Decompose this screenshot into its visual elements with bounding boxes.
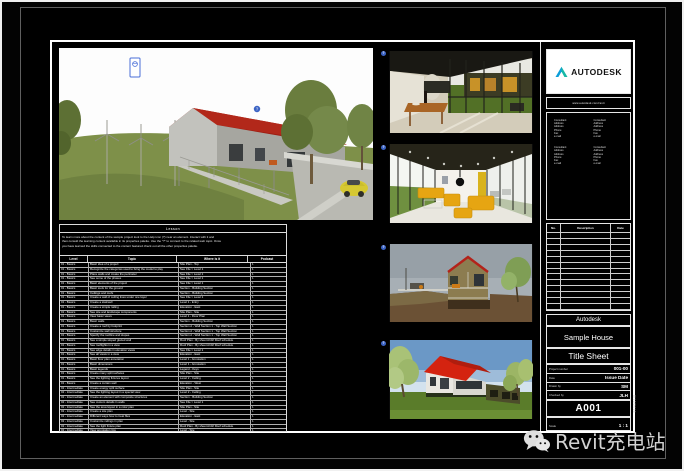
field-label: Checked by [549, 393, 564, 397]
schedule-intro: To learn more about the content of the s… [60, 233, 286, 256]
revision-cell [611, 298, 630, 303]
table-cell: Roof Plan - By sheet A102 Roof schedule [179, 344, 251, 348]
watermark-text: Revit充电站 [555, 426, 666, 455]
field-value: SM [621, 384, 628, 389]
revision-cell [547, 286, 561, 291]
table-cell: 1 [251, 301, 286, 305]
table-cell: 02 - Intermediate [60, 420, 89, 424]
revision-cell [561, 280, 611, 285]
table-cell: Elevation - East [179, 306, 251, 310]
table-cell: Basic idea of a project [89, 263, 179, 267]
field-value: Issue Date [605, 375, 628, 380]
table-cell: 01 - Basics [60, 363, 89, 367]
table-cell: Level 1 - Annotation [179, 358, 251, 362]
table-cell: 02 - Intermediate [60, 429, 89, 431]
table-cell: Different ways how to treat files [89, 415, 179, 419]
table-cell: Level - Site [179, 420, 251, 424]
table-cell: 1 [251, 368, 286, 372]
kitchen-rendering [389, 51, 533, 133]
consultant-line: e-mail [554, 162, 584, 165]
table-cell: Level 2 - Ceiling [179, 391, 251, 395]
revision-cell [547, 233, 561, 238]
table-cell: 1 [251, 339, 286, 343]
table-cell: Level - Site [179, 429, 251, 431]
revision-cell [547, 298, 561, 303]
table-cell: 1 [251, 287, 286, 291]
field-value: 001-00 [614, 366, 628, 371]
table-cell: Basic dimensions [89, 363, 179, 367]
consultant-line: e-mail [594, 162, 624, 165]
revision-rows [547, 233, 630, 310]
revision-cell [547, 263, 561, 268]
table-cell: 1 [251, 306, 286, 310]
table-cell: 01 - Basics [60, 306, 89, 310]
table-cell: See the area layout in a color plan [89, 406, 179, 410]
lessons-schedule: Lesson To learn more about the content o… [59, 224, 287, 432]
table-cell: 02 - Intermediate [60, 425, 89, 429]
revision-cell [561, 245, 611, 250]
table-cell: See all views in a view [89, 353, 179, 357]
revision-cell [611, 245, 630, 250]
table-cell: 1 [251, 429, 286, 431]
project-field-row: Checked byJLH [546, 391, 631, 400]
table-cell: Basic walls [89, 320, 179, 324]
help-icon[interactable]: ? [381, 245, 386, 250]
table-cell: 1 [251, 420, 286, 424]
revision-cell [561, 263, 611, 268]
table-cell: 02 - Intermediate [60, 410, 89, 414]
table-cell: 01 - Basics [60, 382, 89, 386]
elevation-marker-icon[interactable] [130, 58, 140, 77]
table-cell: 02 - Intermediate [60, 391, 89, 395]
project-field-row: Project number001-00 [546, 364, 631, 374]
table-cell: 01 - Basics [60, 263, 89, 267]
autodesk-logo-icon [555, 66, 568, 78]
column-header-podcast: Podcast [248, 256, 286, 262]
table-cell: See File > Level 1 [179, 296, 251, 300]
table-cell: 01 - Basics [60, 334, 89, 338]
table-cell: Legend - Keys [179, 368, 251, 372]
table-cell: See some of the phases [89, 277, 179, 281]
table-cell: Section A - Wall Section 1 - Top Wall Se… [179, 325, 251, 329]
table-cell: 1 [251, 387, 286, 391]
table-cell: 1 [251, 425, 286, 429]
table-cell: See the lighting fixtures layout [89, 377, 179, 381]
project-fields: Project number001-00DateIssue DateDrawn … [546, 364, 631, 400]
revision-cell [611, 257, 630, 262]
table-cell: 01 - Basics [60, 273, 89, 277]
viewport-section-view[interactable] [389, 244, 533, 322]
revision-cell [561, 239, 611, 244]
table-cell: Roof Plan - By sheet A102 Roof schedule [179, 339, 251, 343]
revision-cell [611, 239, 630, 244]
table-cell: Section - Building Section [179, 320, 251, 324]
table-cell: Section - Building Section [179, 287, 251, 291]
table-cell: Level 1 - Annotation [179, 363, 251, 367]
revision-cell [561, 274, 611, 279]
table-cell: 01 - Basics [60, 287, 89, 291]
table-cell: Site Plan - Site [179, 387, 251, 391]
table-cell: 01 - Basics [60, 277, 89, 281]
table-cell: Site Plan - Top [179, 263, 251, 267]
revision-cell [611, 292, 630, 297]
help-icon[interactable]: ? [254, 106, 260, 112]
table-cell: 1 [251, 320, 286, 324]
table-cell: 1 [251, 401, 286, 405]
table-cell: See custom details in walls [89, 401, 179, 405]
revision-cell [547, 304, 561, 309]
table-cell: 1 [251, 282, 286, 286]
revision-cell [561, 233, 611, 238]
revision-cell [611, 233, 630, 238]
table-cell: 01 - Basics [60, 325, 89, 329]
yellow-car [340, 180, 368, 197]
table-cell: See a simple sloped glazed wall [89, 339, 179, 343]
table-cell: Section - Building Section [179, 292, 251, 296]
living-room-rendering [389, 144, 533, 223]
revision-cell [561, 292, 611, 297]
table-cell: See File > Level 1 [179, 401, 251, 405]
table-cell: 01 - Basics [60, 301, 89, 305]
revision-cell [547, 274, 561, 279]
autodesk-logo-text: AUTODESK [571, 67, 622, 77]
revision-cell [611, 274, 630, 279]
table-cell: 02 - Intermediate [60, 396, 89, 400]
table-cell: 01 - Basics [60, 268, 89, 272]
table-cell: Section - Building Section [179, 396, 251, 400]
table-row: 02 - IntermediateView annotation tipsLev… [60, 429, 286, 431]
field-label: Drawn by [549, 384, 561, 388]
column-header-level: Level [60, 256, 88, 262]
table-cell: Specify the roofline and slopes [89, 334, 179, 338]
table-cell: 1 [251, 391, 286, 395]
exterior-rendering [389, 340, 533, 419]
table-cell: Create an element with composite structu… [89, 396, 179, 400]
table-cell: Elevation - West [179, 382, 251, 386]
table-cell: Create a stairwell [89, 301, 179, 305]
table-cell: Level 2 - Ceiling [179, 377, 251, 381]
revision-row [547, 304, 630, 310]
table-cell: 1 [251, 292, 286, 296]
table-cell: 1 [251, 406, 286, 410]
client-name: Autodesk [546, 314, 631, 326]
sheet-number: A001 [546, 400, 631, 417]
table-cell: Site Plan - Site [179, 406, 251, 410]
table-cell: 1 [251, 358, 286, 362]
help-icon[interactable]: ? [381, 145, 386, 150]
table-cell: 02 - Intermediate [60, 387, 89, 391]
table-cell: See edge details in elevation views [89, 349, 179, 353]
autodesk-logo-box: AUTODESK [546, 49, 631, 94]
revision-cell [611, 263, 630, 268]
table-cell: Recognize the categories used to bring t… [89, 268, 179, 272]
table-cell: Section A - Wall Section 1 - Top Wall Se… [179, 330, 251, 334]
table-cell: Elevation - East [179, 353, 251, 357]
table-cell: See File > Level 1 [179, 268, 251, 272]
table-cell: 01 - Basics [60, 377, 89, 381]
table-cell: See site and landscape components [89, 311, 179, 315]
schedule-rows: 01 - BasicsBasic idea of a projectSite P… [60, 263, 286, 431]
viewport-living-room-rendering[interactable] [389, 144, 533, 223]
table-cell: View annotation tips [89, 429, 179, 431]
table-cell: Site Plan - Site [179, 311, 251, 315]
table-cell: View basic views [89, 315, 179, 319]
project-name: Sample House [546, 326, 631, 348]
consultant-line: e-mail [594, 135, 624, 138]
revision-cell [611, 286, 630, 291]
schedule-header-row: Level Topic Where is it Podcast [60, 256, 286, 263]
revision-cell [561, 298, 611, 303]
field-value: JLH [619, 393, 628, 398]
table-cell: Customize wall structure [89, 330, 179, 334]
table-cell: Basic floor plan annotation [89, 358, 179, 362]
revision-cell [611, 251, 630, 256]
revision-cell [561, 286, 611, 291]
help-icon[interactable]: ? [381, 341, 386, 346]
table-cell: See File > Level 1 [179, 273, 251, 277]
viewport-3d-perspective[interactable]: ? [59, 48, 373, 220]
table-cell: 1 [251, 315, 286, 319]
column-header-topic: Topic [88, 256, 177, 262]
table-cell: 1 [251, 344, 286, 348]
revision-col-no: No. [547, 224, 561, 232]
table-cell: Site Plan - Site [179, 372, 251, 376]
viewport-exterior-rendering[interactable] [389, 340, 533, 419]
table-cell: Basic tools for the ground [89, 287, 179, 291]
table-cell: Basic elements of the project [89, 282, 179, 286]
table-cell: 1 [251, 363, 286, 367]
table-cell: Level 1 - Floor Plan [179, 315, 251, 319]
table-cell: 1 [251, 334, 286, 338]
sheet-title: Title Sheet [546, 348, 631, 364]
table-cell: Customize railings in plan [89, 420, 179, 424]
table-cell: Section A - Wall Section 1 - Top Wall Se… [179, 334, 251, 338]
revision-cell [547, 251, 561, 256]
revision-cell [611, 269, 630, 274]
titleblock-divider [540, 42, 541, 431]
table-cell: Create a site plan [89, 410, 179, 414]
table-cell: 01 - Basics [60, 349, 89, 353]
table-cell: 1 [251, 353, 286, 357]
consultant-blocks: ConsultantAddressAddressPhoneFaxe-mailCo… [546, 112, 631, 220]
table-cell: 01 - Basics [60, 311, 89, 315]
table-cell: Ceilings and roofs [89, 292, 179, 296]
table-cell: See the lighting layout in a special vie… [89, 391, 179, 395]
table-cell: 1 [251, 268, 286, 272]
table-cell: Create a simple railing [89, 306, 179, 310]
table-cell: 1 [251, 415, 286, 419]
table-cell: Create energy split surface [89, 387, 179, 391]
revision-cell [561, 251, 611, 256]
field-label: Date [549, 376, 555, 380]
table-cell: 01 - Basics [60, 282, 89, 286]
revision-cell [561, 269, 611, 274]
autodesk-url-box: www.autodesk.com/revit [546, 97, 631, 109]
revision-header-row: No. Description Date [547, 224, 630, 233]
revision-cell [611, 304, 630, 309]
table-cell: 1 [251, 349, 286, 353]
table-cell: 01 - Basics [60, 368, 89, 372]
table-cell: 1 [251, 325, 286, 329]
viewport-kitchen-rendering[interactable] [389, 51, 533, 133]
revit-sheet-canvas: ? ? ? ? ? [0, 0, 684, 471]
table-cell: 1 [251, 311, 286, 315]
revision-cell [547, 239, 561, 244]
table-cell: See File > Level 1 [179, 349, 251, 353]
table-cell: 1 [251, 382, 286, 386]
table-cell: Level - Site [179, 410, 251, 414]
exterior-3d-rendering: ? [59, 48, 373, 220]
table-cell: 01 - Basics [60, 358, 89, 362]
table-cell: See File > Level 1 [179, 277, 251, 281]
schedule-title: Lesson [60, 225, 286, 233]
wechat-icon [523, 429, 550, 453]
table-cell: Basic legends [89, 368, 179, 372]
table-cell: 1 [251, 296, 286, 300]
consultant-block: ConsultantAddressAddressPhoneFaxe-mail [594, 119, 624, 138]
table-cell: 1 [251, 396, 286, 400]
table-cell: 01 - Basics [60, 344, 89, 348]
table-cell: Level 1 - Entry [179, 301, 251, 305]
revision-cell [547, 257, 561, 262]
table-cell: 02 - Intermediate [60, 406, 89, 410]
table-cell: 1 [251, 377, 286, 381]
table-cell: 1 [251, 330, 286, 334]
table-cell: 01 - Basics [60, 315, 89, 319]
project-field-row: Drawn bySM [546, 383, 631, 392]
consultant-block: ConsultantAddressAddressPhoneFaxe-mail [594, 146, 624, 165]
consultant-line: e-mail [554, 135, 584, 138]
intro-line: you have learned the skills connected to… [62, 244, 284, 249]
consultant-block: ConsultantAddressAddressPhoneFaxe-mail [554, 146, 584, 165]
table-cell: 1 [251, 277, 286, 281]
table-cell: Create a curtain wall [89, 382, 179, 386]
revision-cell [611, 280, 630, 285]
revision-cell [547, 269, 561, 274]
table-cell: Roof Plan - By sheet A102 Roof schedule [179, 425, 251, 429]
table-cell: Create a wall of ceiling lines under one… [89, 296, 179, 300]
revision-cell [547, 245, 561, 250]
table-cell: Place walls and create the perimeter [89, 273, 179, 277]
table-cell: 01 - Basics [60, 372, 89, 376]
revision-cell [561, 304, 611, 309]
table-cell: 02 - Intermediate [60, 401, 89, 405]
field-label: Project number [549, 367, 568, 371]
table-cell: 1 [251, 263, 286, 267]
revision-table: No. Description Date [546, 223, 631, 311]
consultant-block: ConsultantAddressAddressPhoneFaxe-mail [554, 119, 584, 138]
wechat-watermark: Revit充电站 [523, 426, 666, 455]
table-cell: See the light fixture plan [89, 425, 179, 429]
table-cell: 01 - Basics [60, 339, 89, 343]
table-cell: Elevation - East [179, 415, 251, 419]
revision-col-date: Date [611, 224, 630, 232]
help-icon[interactable]: ? [381, 51, 386, 56]
revision-col-description: Description [561, 224, 611, 232]
table-cell: 1 [251, 273, 286, 277]
revision-cell [561, 257, 611, 262]
table-cell: 01 - Basics [60, 353, 89, 357]
plot-stamp: 8/12/2016 [632, 395, 636, 429]
table-cell: See File > Level 1 [179, 282, 251, 286]
table-cell: 01 - Basics [60, 320, 89, 324]
table-cell: 01 - Basics [60, 296, 89, 300]
table-cell: 01 - Basics [60, 292, 89, 296]
section-3d-rendering [389, 244, 533, 322]
table-cell: 01 - Basics [60, 330, 89, 334]
revision-cell [547, 292, 561, 297]
table-cell: Create many split surfaces [89, 372, 179, 376]
table-cell: 1 [251, 372, 286, 376]
table-cell: 02 - Intermediate [60, 415, 89, 419]
table-cell: Create a roof by footprint [89, 325, 179, 329]
revision-cell [547, 280, 561, 285]
table-cell: 1 [251, 410, 286, 414]
table-cell: See rooflights in a view [89, 344, 179, 348]
project-field-row: DateIssue Date [546, 374, 631, 383]
column-header-where: Where is it [177, 256, 248, 262]
